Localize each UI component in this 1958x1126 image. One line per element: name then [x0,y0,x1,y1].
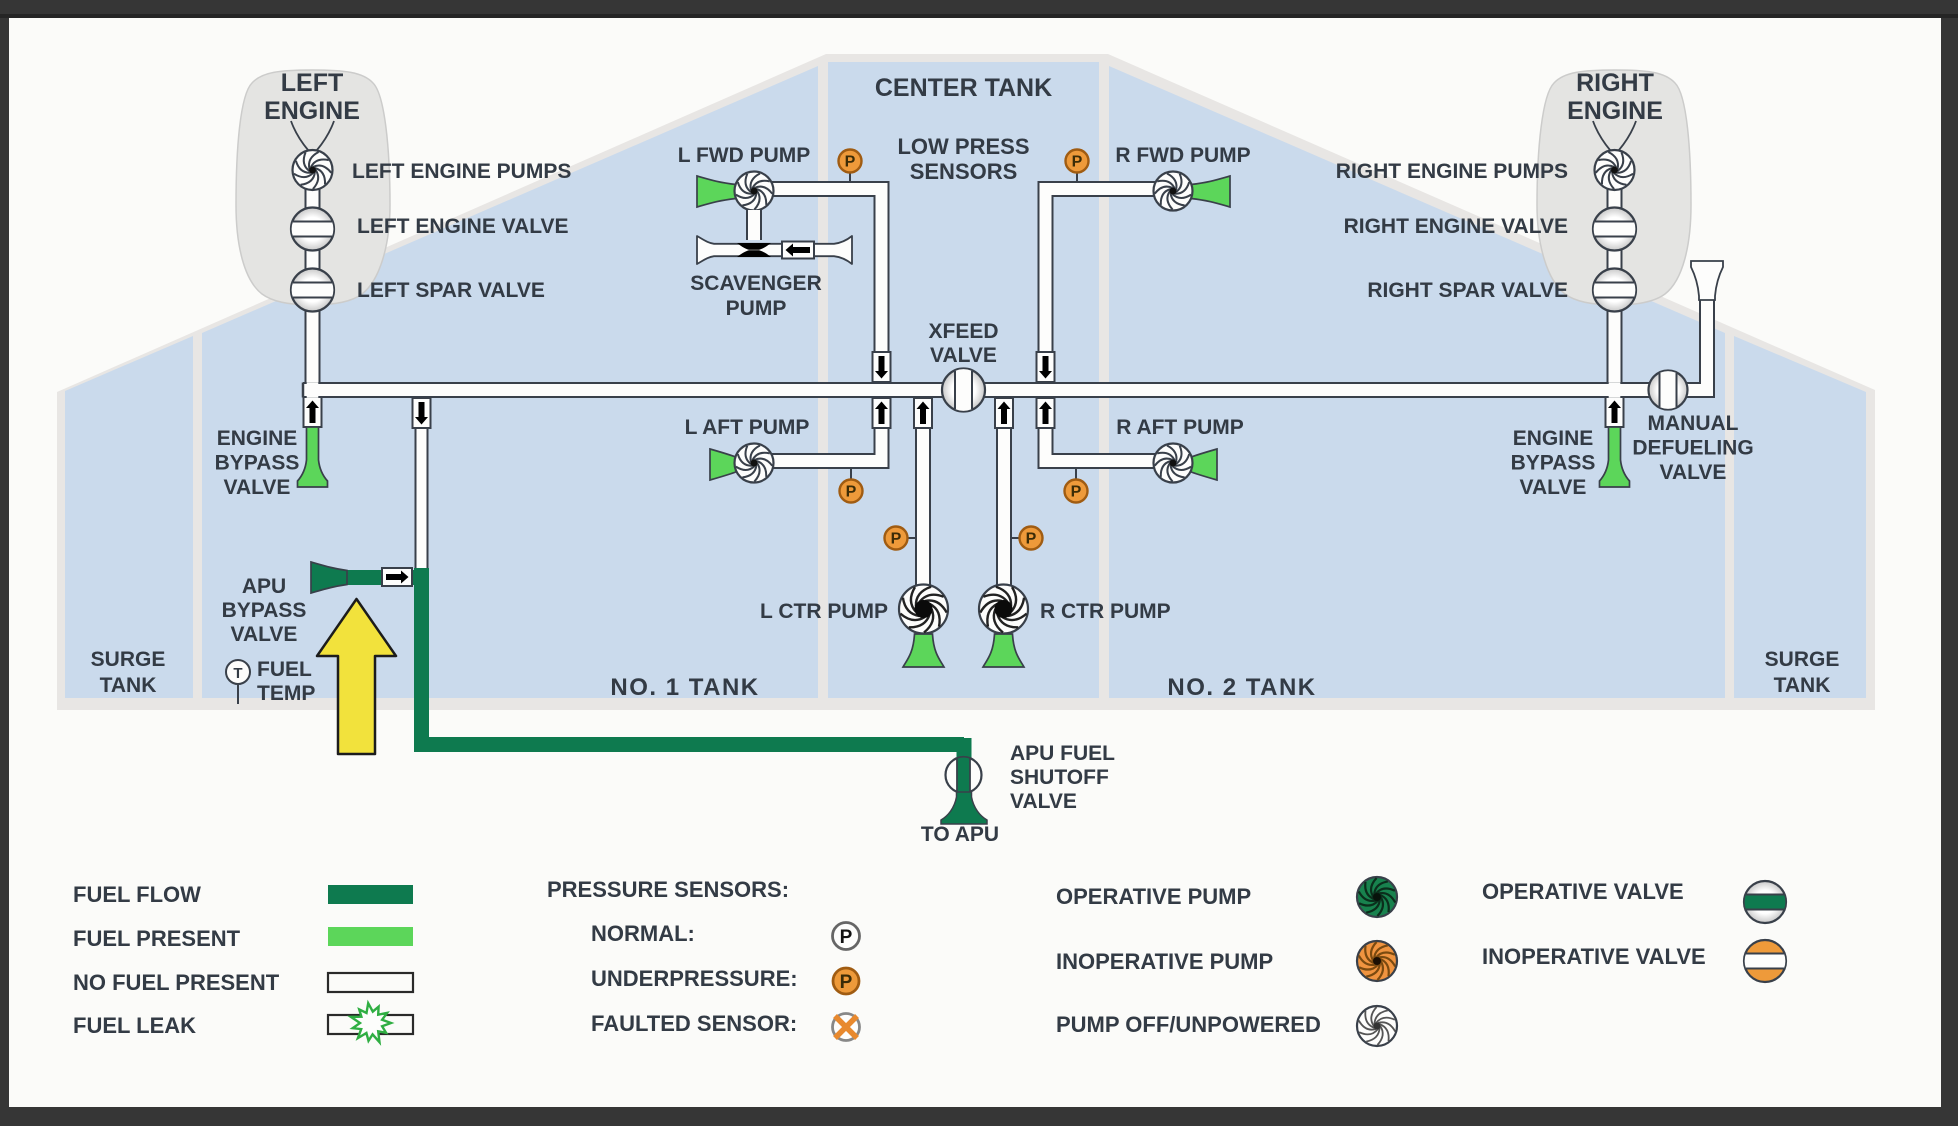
svg-text:DEFUELING: DEFUELING [1632,437,1753,460]
svg-text:UNDERPRESSURE:: UNDERPRESSURE: [591,966,798,991]
svg-text:INOPERATIVE PUMP: INOPERATIVE PUMP [1056,949,1273,974]
svg-text:TEMP: TEMP [257,682,315,705]
svg-text:APU FUEL: APU FUEL [1010,742,1115,765]
svg-text:VALVE: VALVE [1660,461,1727,484]
svg-text:OPERATIVE PUMP: OPERATIVE PUMP [1056,884,1251,909]
svg-text:P: P [1026,531,1037,548]
svg-text:BYPASS: BYPASS [215,452,300,475]
svg-text:VALVE: VALVE [231,623,298,646]
svg-text:NO. 2 TANK: NO. 2 TANK [1167,674,1316,701]
svg-text:SCAVENGER: SCAVENGER [690,272,821,295]
svg-text:VALVE: VALVE [1010,790,1077,813]
svg-text:P: P [840,927,853,948]
svg-text:VALVE: VALVE [1520,476,1587,499]
svg-text:NO FUEL PRESENT: NO FUEL PRESENT [73,970,280,995]
svg-text:RIGHT ENGINE PUMPS: RIGHT ENGINE PUMPS [1336,160,1568,183]
svg-text:FUEL: FUEL [257,658,312,681]
svg-text:P: P [845,154,856,171]
svg-text:RIGHT: RIGHT [1576,69,1654,97]
svg-text:SHUTOFF: SHUTOFF [1010,766,1109,789]
svg-text:R AFT PUMP: R AFT PUMP [1116,416,1244,439]
svg-text:FUEL PRESENT: FUEL PRESENT [73,926,241,951]
svg-text:ENGINE: ENGINE [1513,427,1594,450]
svg-text:VALVE: VALVE [224,476,291,499]
svg-text:TO APU: TO APU [921,823,999,846]
svg-text:L FWD PUMP: L FWD PUMP [678,144,811,167]
svg-text:INOPERATIVE VALVE: INOPERATIVE VALVE [1482,944,1706,969]
svg-text:FAULTED SENSOR:: FAULTED SENSOR: [591,1011,797,1036]
svg-text:FUEL FLOW: FUEL FLOW [73,882,201,907]
svg-text:SURGE: SURGE [91,648,166,671]
svg-text:ENGINE: ENGINE [217,427,298,450]
svg-text:BYPASS: BYPASS [1511,452,1596,475]
svg-text:PUMP OFF/UNPOWERED: PUMP OFF/UNPOWERED [1056,1012,1321,1037]
svg-text:OPERATIVE VALVE: OPERATIVE VALVE [1482,879,1684,904]
svg-text:BYPASS: BYPASS [222,599,307,622]
svg-text:ENGINE: ENGINE [1567,97,1663,125]
svg-text:P: P [840,972,853,993]
svg-text:APU: APU [242,575,286,598]
svg-text:PRESSURE SENSORS:: PRESSURE SENSORS: [547,877,789,902]
svg-text:NORMAL:: NORMAL: [591,921,695,946]
svg-text:PUMP: PUMP [726,297,787,320]
svg-text:LEFT ENGINE PUMPS: LEFT ENGINE PUMPS [352,160,571,183]
svg-text:R CTR PUMP: R CTR PUMP [1040,600,1171,623]
svg-text:P: P [1071,484,1082,501]
svg-text:RIGHT ENGINE VALVE: RIGHT ENGINE VALVE [1344,215,1568,238]
svg-text:LEFT SPAR VALVE: LEFT SPAR VALVE [357,279,545,302]
svg-text:NO. 1 TANK: NO. 1 TANK [610,674,759,701]
svg-text:TANK: TANK [1774,674,1831,697]
svg-text:CENTER TANK: CENTER TANK [875,74,1052,102]
svg-text:LEFT: LEFT [281,69,344,97]
svg-text:LOW PRESS: LOW PRESS [897,134,1029,159]
svg-text:T: T [233,665,242,682]
svg-text:P: P [846,484,857,501]
svg-text:L AFT PUMP: L AFT PUMP [685,416,810,439]
svg-text:RIGHT SPAR VALVE: RIGHT SPAR VALVE [1367,279,1568,302]
svg-text:R FWD PUMP: R FWD PUMP [1115,144,1250,167]
svg-text:ENGINE: ENGINE [264,97,360,125]
svg-text:P: P [1072,154,1083,171]
svg-text:SENSORS: SENSORS [910,159,1018,184]
svg-text:FUEL LEAK: FUEL LEAK [73,1013,196,1038]
svg-text:XFEED: XFEED [928,320,998,343]
svg-text:LEFT ENGINE VALVE: LEFT ENGINE VALVE [357,215,569,238]
svg-text:L CTR PUMP: L CTR PUMP [760,600,888,623]
svg-text:TANK: TANK [100,674,157,697]
svg-text:VALVE: VALVE [930,344,997,367]
svg-text:MANUAL: MANUAL [1648,412,1739,435]
svg-text:P: P [891,531,902,548]
svg-text:SURGE: SURGE [1765,648,1840,671]
